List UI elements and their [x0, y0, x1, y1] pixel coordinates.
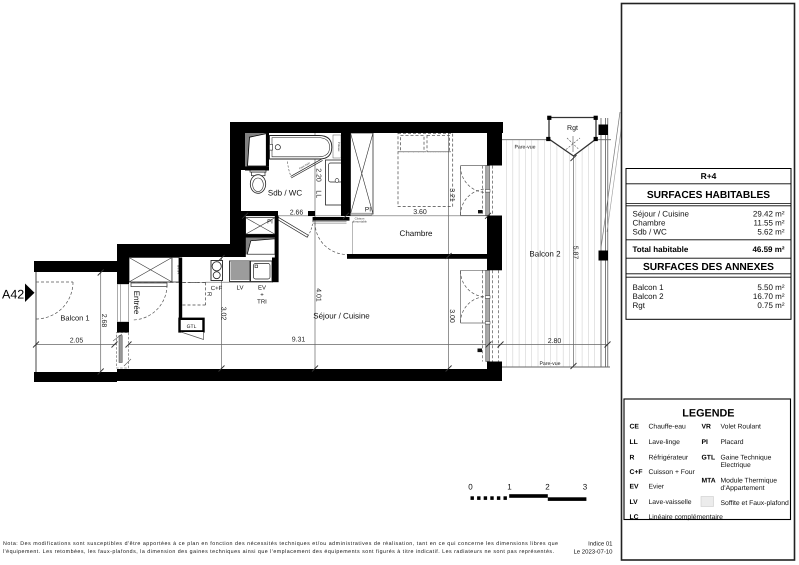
svg-text:Volet Roulant: Volet Roulant	[721, 423, 762, 430]
svg-text:CE: CE	[630, 423, 640, 430]
svg-text:Gaine Technique: Gaine Technique	[721, 454, 772, 461]
svg-text:C+F: C+F	[211, 285, 223, 292]
svg-text:2.05: 2.05	[70, 338, 84, 345]
svg-text:d'Appartement: d'Appartement	[721, 485, 765, 492]
svg-text:4.01: 4.01	[314, 288, 321, 302]
svg-text:Electrique: Electrique	[721, 462, 751, 469]
svg-text:Rgt: Rgt	[567, 125, 578, 132]
svg-text:Pare-vue: Pare-vue	[514, 145, 535, 151]
svg-text:SURFACES HABITABLES: SURFACES HABITABLES	[647, 190, 770, 201]
svg-text:3.00: 3.00	[448, 309, 455, 323]
svg-text:Lave-linge: Lave-linge	[649, 439, 681, 446]
svg-text:5.62 m²: 5.62 m²	[757, 228, 784, 237]
svg-text:16.70 m²: 16.70 m²	[753, 292, 785, 301]
svg-text:GTL: GTL	[702, 454, 716, 461]
svg-text:5.87: 5.87	[571, 246, 578, 260]
svg-text:démontable: démontable	[352, 220, 367, 224]
svg-text:9.31: 9.31	[292, 337, 306, 344]
svg-text:Poteau: Poteau	[337, 142, 341, 152]
svg-text:SURFACES DES ANNEXES: SURFACES DES ANNEXES	[643, 262, 774, 273]
svg-text:0: 0	[468, 483, 473, 492]
svg-text:MTA: MTA	[702, 478, 716, 485]
svg-text:TRI: TRI	[257, 299, 267, 306]
svg-text:2.66: 2.66	[290, 210, 304, 217]
svg-text:Nota: Des modifications sont s: Nota: Des modifications sont susceptible…	[3, 541, 558, 547]
svg-text:PI: PI	[702, 439, 709, 446]
svg-text:R+4: R+4	[701, 171, 717, 181]
svg-text:Séjour / Cuisine: Séjour / Cuisine	[313, 312, 370, 321]
svg-text:3: 3	[583, 483, 588, 492]
svg-text:EV: EV	[258, 285, 266, 292]
svg-text:Linéaire complémentaire: Linéaire complémentaire	[649, 514, 724, 521]
svg-text:Le 2023-07-10: Le 2023-07-10	[573, 549, 613, 556]
svg-text:3.02: 3.02	[219, 307, 226, 321]
svg-text:Indice 01: Indice 01	[588, 541, 613, 548]
svg-text:Total habitable: Total habitable	[633, 245, 689, 254]
svg-text:PI: PI	[267, 219, 273, 226]
svg-text:2.20: 2.20	[314, 168, 321, 182]
svg-text:Cuisson + Four: Cuisson + Four	[649, 469, 696, 476]
svg-text:LV: LV	[237, 285, 244, 292]
svg-text:PI: PI	[365, 207, 371, 214]
svg-text:Chambre: Chambre	[400, 229, 433, 238]
svg-text:Balcon 2: Balcon 2	[633, 292, 665, 301]
svg-text:Chauffe-eau: Chauffe-eau	[649, 423, 687, 430]
svg-text:3.21: 3.21	[448, 188, 455, 202]
svg-text:Balcon 2: Balcon 2	[529, 250, 561, 259]
svg-text:LL: LL	[315, 190, 322, 198]
svg-text:Sdb / WC: Sdb / WC	[633, 228, 667, 237]
svg-text:l'équipement. Les retombées, l: l'équipement. Les retombées, les faux-pl…	[3, 549, 554, 555]
svg-text:+: +	[260, 293, 264, 299]
svg-text:Balcon 1: Balcon 1	[60, 314, 89, 323]
svg-text:2: 2	[545, 483, 550, 492]
svg-text:3.60: 3.60	[413, 209, 427, 216]
svg-text:LV: LV	[630, 499, 639, 506]
svg-text:Lave-vaisselle: Lave-vaisselle	[649, 499, 692, 506]
svg-text:Réfrigérateur: Réfrigérateur	[649, 454, 689, 461]
svg-text:VR: VR	[702, 423, 712, 430]
svg-text:LC: LC	[630, 514, 639, 521]
svg-text:LL: LL	[630, 439, 638, 446]
svg-text:C+F: C+F	[630, 469, 643, 476]
svg-text:R: R	[630, 454, 635, 461]
svg-text:Balcon 1: Balcon 1	[633, 283, 665, 292]
svg-text:Séjour / Cuisine: Séjour / Cuisine	[633, 210, 690, 219]
svg-text:11.55 m²: 11.55 m²	[754, 219, 785, 228]
svg-text:EV: EV	[630, 484, 640, 491]
svg-text:Module Thermique: Module Thermique	[721, 478, 778, 485]
svg-text:2.80: 2.80	[548, 338, 562, 345]
svg-text:GTL: GTL	[187, 324, 197, 330]
svg-text:Rgt: Rgt	[633, 301, 646, 310]
svg-text:1: 1	[507, 483, 512, 492]
svg-text:5.50 m²: 5.50 m²	[757, 283, 784, 292]
svg-text:Entrée: Entrée	[132, 291, 141, 315]
svg-text:Chambre: Chambre	[633, 219, 666, 228]
svg-text:LEGENDE: LEGENDE	[682, 407, 734, 419]
svg-text:Pare-vue: Pare-vue	[539, 361, 560, 367]
svg-text:46.59 m²: 46.59 m²	[752, 245, 784, 254]
svg-text:Sdb / WC: Sdb / WC	[268, 189, 302, 198]
svg-text:Soffite et Faux-plafond: Soffite et Faux-plafond	[721, 500, 789, 507]
svg-text:R: R	[205, 292, 212, 297]
svg-text:Placard: Placard	[721, 439, 744, 446]
svg-text:A42: A42	[2, 288, 24, 302]
svg-text:0.75 m²: 0.75 m²	[757, 301, 784, 310]
svg-text:29.42 m²: 29.42 m²	[753, 210, 785, 219]
svg-text:2.68: 2.68	[100, 314, 107, 328]
svg-text:Evier: Evier	[649, 484, 665, 491]
